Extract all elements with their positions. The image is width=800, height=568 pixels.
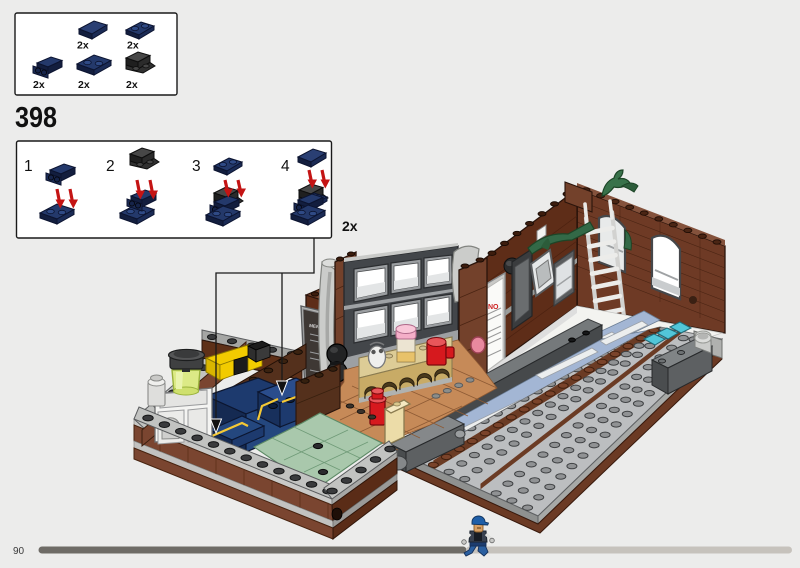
svg-text:2x: 2x (33, 79, 45, 91)
svg-text:4: 4 (281, 158, 290, 175)
svg-text:2x: 2x (342, 218, 358, 234)
svg-text:2x: 2x (127, 40, 139, 52)
svg-text:2x: 2x (77, 40, 89, 52)
svg-text:2: 2 (106, 158, 115, 175)
svg-text:90: 90 (13, 546, 25, 557)
svg-text:3: 3 (192, 158, 201, 175)
svg-text:398: 398 (15, 102, 57, 134)
svg-text:1: 1 (24, 158, 33, 175)
svg-text:2x: 2x (78, 79, 90, 91)
svg-text:2x: 2x (126, 79, 138, 91)
